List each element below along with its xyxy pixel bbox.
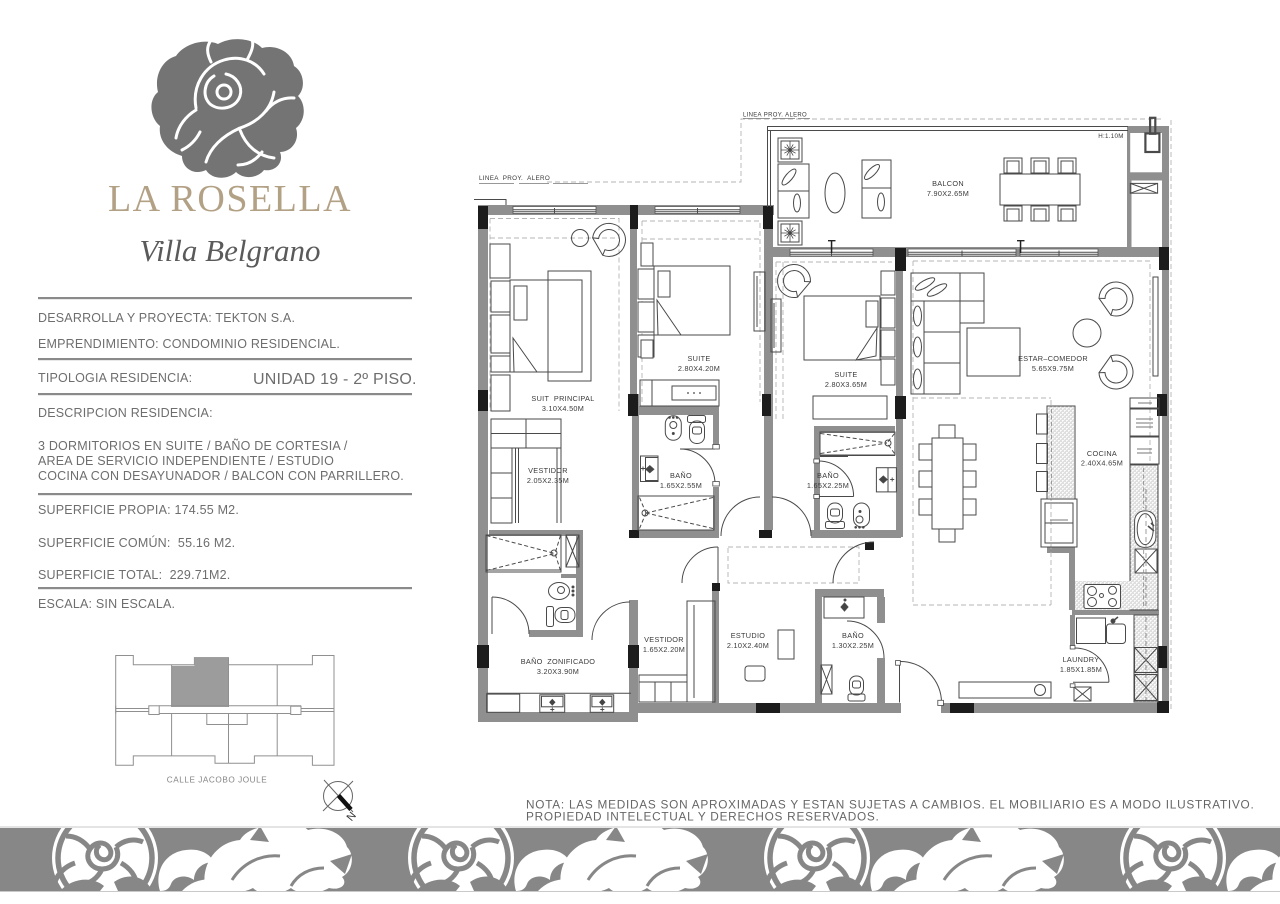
svg-text:3 DORMITORIOS EN SUITE / BAÑO: 3 DORMITORIOS EN SUITE / BAÑO DE CORTESI… <box>38 439 348 453</box>
svg-text:SUIT PRINCIPAL: SUIT PRINCIPAL <box>531 394 594 403</box>
svg-text:BALCON: BALCON <box>932 179 964 188</box>
svg-text:UNIDAD 19 - 2º PISO.: UNIDAD 19 - 2º PISO. <box>253 371 417 388</box>
svg-text:1.65X2.25M: 1.65X2.25M <box>807 481 849 490</box>
svg-text:2.10X2.40M: 2.10X2.40M <box>727 641 769 650</box>
svg-text:SUPERFICIE COMÚN: 55.16 M2.: SUPERFICIE COMÚN: 55.16 M2. <box>38 535 235 550</box>
svg-text:BAÑO: BAÑO <box>817 471 839 480</box>
svg-text:1.30X2.25M: 1.30X2.25M <box>832 641 874 650</box>
svg-text:CALLE JACOBO JOULE: CALLE JACOBO JOULE <box>167 776 267 785</box>
svg-text:2.80X3.65M: 2.80X3.65M <box>825 380 867 389</box>
svg-text:DESCRIPCION RESIDENCIA:: DESCRIPCION RESIDENCIA: <box>38 406 213 420</box>
svg-text:5.65X9.75M: 5.65X9.75M <box>1032 364 1074 373</box>
svg-text:SUITE: SUITE <box>688 354 711 363</box>
svg-text:VESTIDOR: VESTIDOR <box>528 466 568 475</box>
svg-text:PROPIEDAD INTELECTUAL Y DERECH: PROPIEDAD INTELECTUAL Y DERECHOS RESERVA… <box>526 810 880 824</box>
svg-text:3.20X3.90M: 3.20X3.90M <box>537 667 579 676</box>
svg-text:2.80X4.20M: 2.80X4.20M <box>678 364 720 373</box>
svg-text:EMPRENDIMIENTO: CONDOMINIO RES: EMPRENDIMIENTO: CONDOMINIO RESIDENCIAL. <box>38 337 340 351</box>
svg-text:COCINA: COCINA <box>1087 449 1117 458</box>
svg-text:BAÑO: BAÑO <box>670 471 692 480</box>
svg-text:COCINA CON DESAYUNADOR / BALCO: COCINA CON DESAYUNADOR / BALCON CON PARR… <box>38 469 404 483</box>
svg-text:1.65X2.20M: 1.65X2.20M <box>643 645 685 654</box>
svg-text:3.10X4.50M: 3.10X4.50M <box>542 404 584 413</box>
svg-text:2.40X4.65M: 2.40X4.65M <box>1081 459 1123 468</box>
svg-text:7.90X2.65M: 7.90X2.65M <box>927 189 969 198</box>
svg-text:SUITE: SUITE <box>835 370 858 379</box>
svg-text:LA ROSELLA: LA ROSELLA <box>108 178 352 220</box>
svg-text:VESTIDOR: VESTIDOR <box>644 635 684 644</box>
svg-text:TIPOLOGIA RESIDENCIA:: TIPOLOGIA RESIDENCIA: <box>38 371 192 385</box>
svg-text:2.05X2.35M: 2.05X2.35M <box>527 476 569 485</box>
svg-text:LAUNDRY: LAUNDRY <box>1063 655 1100 664</box>
svg-text:H:1.10M: H:1.10M <box>1098 133 1123 140</box>
svg-text:SUPERFICIE PROPIA: 174.55 M2.: SUPERFICIE PROPIA: 174.55 M2. <box>38 503 239 517</box>
svg-text:DESARROLLA Y PROYECTA: TEKTON: DESARROLLA Y PROYECTA: TEKTON S.A. <box>38 311 295 325</box>
svg-text:Villa Belgrano: Villa Belgrano <box>139 233 320 268</box>
svg-text:AREA DE SERVICIO INDEPENDIENTE: AREA DE SERVICIO INDEPENDIENTE / ESTUDIO <box>38 454 334 468</box>
svg-text:SUPERFICIE TOTAL: 229.71M2.: SUPERFICIE TOTAL: 229.71M2. <box>38 568 230 582</box>
svg-text:BAÑO ZONIFICADO: BAÑO ZONIFICADO <box>521 657 596 666</box>
svg-text:ESCALA: SIN ESCALA.: ESCALA: SIN ESCALA. <box>38 597 175 611</box>
svg-text:LINEA PROY. ALERO: LINEA PROY. ALERO <box>479 175 550 182</box>
svg-text:1.85X1.85M: 1.85X1.85M <box>1060 665 1102 674</box>
svg-text:ESTUDIO: ESTUDIO <box>731 631 766 640</box>
svg-text:LINEA PROY. ALERO: LINEA PROY. ALERO <box>743 113 807 119</box>
svg-text:N: N <box>345 810 359 824</box>
svg-text:BAÑO: BAÑO <box>842 631 864 640</box>
svg-text:1.65X2.55M: 1.65X2.55M <box>660 481 702 490</box>
svg-text:ESTAR–COMEDOR: ESTAR–COMEDOR <box>1018 354 1088 363</box>
